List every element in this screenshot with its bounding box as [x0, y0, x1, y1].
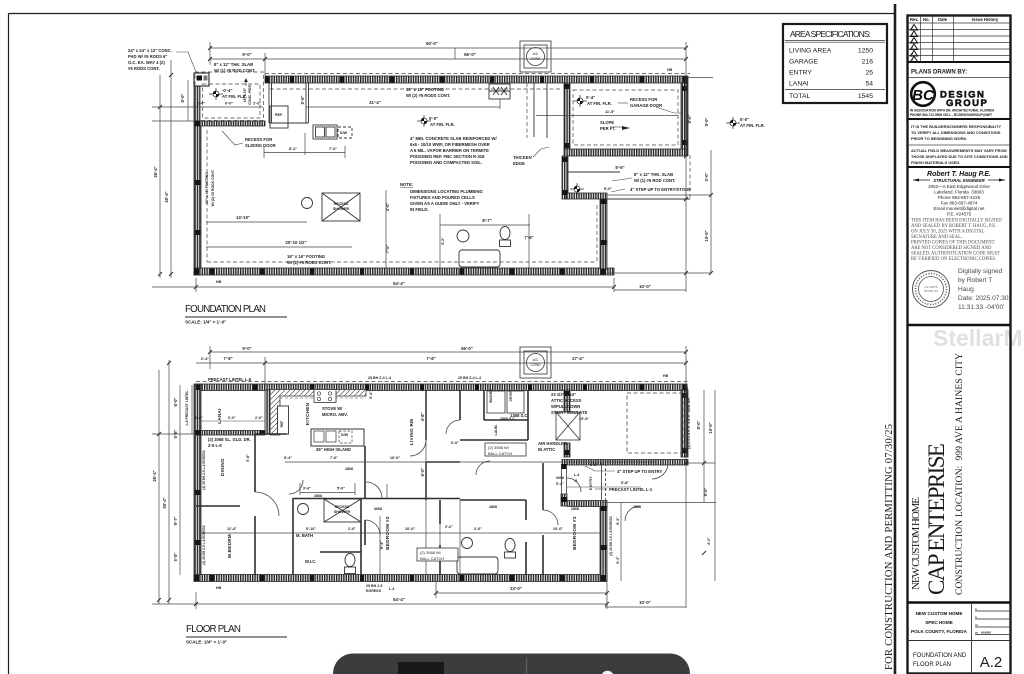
svg-text:25: 25 [865, 70, 873, 77]
svg-text:GARAGE: GARAGE [789, 59, 819, 66]
svg-text:2868: 2868 [489, 505, 497, 509]
svg-text:PAD W/ #5 RODS 6": PAD W/ #5 RODS 6" [128, 54, 167, 59]
svg-text:W/ (1) #5 ROD CONT.: W/ (1) #5 ROD CONT. [214, 68, 255, 73]
svg-text:Lakeland, Florida 33803: Lakeland, Florida 33803 [934, 190, 984, 195]
svg-text:9'-0": 9'-0" [242, 52, 251, 57]
svg-text:Rev.: Rev. [910, 17, 919, 22]
svg-text:(2) 3068 SL. GLD. DR.: (2) 3068 SL. GLD. DR. [208, 437, 251, 442]
svg-text:REF: REF [280, 421, 284, 428]
svg-text:2'-0": 2'-0" [445, 525, 453, 529]
svg-text:!: ! [912, 26, 913, 30]
svg-text:Email mooset@digital.net: Email mooset@digital.net [933, 206, 985, 211]
svg-text:16" x 16" FOOTING: 16" x 16" FOOTING [406, 87, 444, 92]
svg-text:16'-0": 16'-0" [390, 456, 401, 460]
svg-text:2'-0": 2'-0" [197, 102, 205, 106]
svg-text:4" STEP UP TO ENTRY/STOOP: 4" STEP UP TO ENTRY/STOOP [630, 187, 691, 192]
svg-text:2868: 2868 [314, 494, 322, 498]
svg-text:Robert T. Haug P.E.: Robert T. Haug P.E. [927, 171, 991, 178]
svg-text:20'-10 1/2": 20'-10 1/2" [285, 240, 306, 245]
svg-text:2868: 2868 [571, 507, 579, 511]
svg-text:8'-0": 8'-0" [696, 421, 701, 430]
svg-text:P.E. #24575: P.E. #24575 [947, 212, 972, 217]
svg-text:0'-0": 0'-0" [429, 116, 438, 121]
svg-text:Z-5 L-6: Z-5 L-6 [208, 443, 222, 448]
svg-text:by Robert T: by Robert T [958, 277, 992, 284]
svg-text:4'-0": 4'-0" [707, 537, 711, 545]
svg-text:NOTE:: NOTE: [400, 182, 413, 187]
svg-text:SPEC HOME: SPEC HOME [925, 620, 953, 625]
svg-text:REF.: REF. [275, 113, 283, 117]
svg-text:15'-5": 15'-5" [579, 417, 590, 421]
svg-text:AIR HANDLER: AIR HANDLER [538, 441, 567, 446]
svg-text:ATTIC ACCESS: ATTIC ACCESS [551, 398, 582, 403]
svg-text:FINISH MATERIALS USED.: FINISH MATERIALS USED. [911, 160, 960, 165]
svg-text:6x6 - 10/10 WWF, OR FIBERMESH: 6x6 - 10/10 WWF, OR FIBERMESH OVER [410, 142, 490, 147]
svg-text:BC: BC [912, 87, 935, 104]
svg-text:IN FIELD.: IN FIELD. [410, 207, 429, 212]
svg-text:25 BH Z-4 L-4: 25 BH Z-4 L-4 [368, 376, 391, 380]
svg-text:#5 RODS CONT.: #5 RODS CONT. [128, 66, 160, 71]
svg-text:9'-0": 9'-0" [703, 488, 708, 497]
svg-text:SEALED. AUTHENTICATION CODE M: SEALED. AUTHENTICATION CODE MUST [911, 252, 1000, 257]
svg-text:Date: Date [938, 17, 948, 22]
svg-text:SLIDING DOOR: SLIDING DOOR [245, 143, 276, 148]
svg-text:ENTRY: ENTRY [589, 476, 593, 490]
svg-text:A/C: A/C [533, 52, 539, 56]
svg-text:Date: 2025.07.30: Date: 2025.07.30 [958, 295, 1009, 302]
svg-text:RECESS: RECESS [334, 202, 349, 206]
svg-text:m.: m. [975, 623, 979, 627]
svg-text:ON JULY 30, 2025 WITH A DIGITA: ON JULY 30, 2025 WITH A DIGITAL [911, 230, 985, 235]
svg-text:AT FIN. FLR.: AT FIN. FLR. [587, 101, 612, 106]
svg-text:16" x 16" FOOTING: 16" x 16" FOOTING [205, 172, 209, 204]
svg-text:NEW CUSTOM HOME: NEW CUSTOM HOME [910, 497, 922, 590]
svg-text:4" MIN. CONCRETE SLAB REINFORC: 4" MIN. CONCRETE SLAB REINFORCED W/ [410, 136, 498, 141]
svg-text:2'-0": 2'-0" [255, 416, 263, 420]
svg-text:EDGE: EDGE [513, 161, 525, 166]
svg-text:AREA SPECIFICATIONS:: AREA SPECIFICATIONS: [790, 29, 871, 39]
svg-text:(2) 25 BH 2-5 L-6 EGRESS: (2) 25 BH 2-5 L-6 EGRESS [202, 450, 206, 489]
svg-text:(2) 3068 W/: (2) 3068 W/ [488, 445, 510, 450]
svg-text:5'-8": 5'-8" [173, 553, 178, 562]
svg-text:a.: a. [975, 607, 978, 611]
svg-text:5'-4": 5'-4" [284, 456, 292, 460]
svg-text:4" STEP UP TO ENTRY: 4" STEP UP TO ENTRY [617, 469, 663, 474]
svg-text:BALL CATCH: BALL CATCH [488, 451, 512, 456]
svg-text:LIVING AREA: LIVING AREA [789, 48, 832, 55]
svg-text:THIS ITEM HAS BEEN DIGITALLY S: THIS ITEM HAS BEEN DIGITALLY SIGNED [911, 219, 1002, 224]
svg-text:(2) 2-5 L-6 9'-0" x 8'-0" GAR.: (2) 2-5 L-6 9'-0" x 8'-0" GAR. DR. [687, 397, 691, 449]
svg-text:2'-0": 2'-0" [253, 102, 261, 106]
svg-text:SHOWER: SHOWER [334, 510, 351, 514]
svg-text:2'-6": 2'-6" [474, 527, 482, 531]
svg-text:7'-8": 7'-8" [426, 356, 435, 361]
svg-text:A 6 MIL. VAPOR BARRIER ON TERM: A 6 MIL. VAPOR BARRIER ON TERMITE [410, 148, 489, 153]
svg-text:10'-0": 10'-0" [708, 422, 713, 433]
svg-text:30'-4": 30'-4" [162, 497, 167, 508]
svg-text:TO VERIFY ALL DIMENSIONS AND C: TO VERIFY ALL DIMENSIONS AND CONDITIONS [911, 130, 1001, 135]
svg-text:FIXTURES AND POURED CELLS: FIXTURES AND POURED CELLS [410, 195, 475, 200]
svg-text:11'-5": 11'-5" [605, 110, 615, 114]
svg-text:23 1/2" x 54": 23 1/2" x 54" [551, 392, 576, 397]
svg-text:26'-4": 26'-4" [153, 166, 158, 177]
svg-text:60'-0": 60'-0" [426, 41, 438, 46]
svg-text:9'-3": 9'-3" [616, 517, 620, 525]
svg-text:2'-4": 2'-4" [201, 357, 209, 361]
svg-text:A.2: A.2 [980, 654, 1003, 671]
svg-text:10'-0": 10'-0" [704, 230, 709, 241]
svg-text:7'-6": 7'-6" [329, 147, 337, 151]
svg-text:7'-6": 7'-6" [524, 235, 533, 240]
svg-text:COND: COND [531, 363, 542, 367]
svg-text:FLOOR PLAN: FLOOR PLAN [913, 662, 951, 668]
svg-text:5'-0": 5'-0" [604, 187, 612, 191]
svg-text:54'-4": 54'-4" [393, 281, 405, 286]
svg-text:FOUNDATION PLAN: FOUNDATION PLAN [185, 304, 266, 315]
svg-text:2868: 2868 [633, 505, 641, 509]
svg-text:THICKEN: THICKEN [513, 155, 532, 160]
svg-text:1545: 1545 [858, 93, 873, 100]
svg-text:BEDROOM #2: BEDROOM #2 [385, 516, 390, 550]
svg-text:9'-3": 9'-3" [616, 556, 620, 564]
svg-text:9'-4": 9'-4" [369, 391, 373, 399]
svg-text:CONSTRUCTION LOCATION: 999 AV: CONSTRUCTION LOCATION: 999 AVE A HAINES … [955, 353, 965, 595]
svg-text:3'-8": 3'-8" [590, 463, 598, 467]
svg-text:WASHER: WASHER [489, 388, 493, 403]
svg-text:IN ATTIC: IN ATTIC [538, 447, 555, 452]
svg-text:14'-10": 14'-10" [236, 215, 250, 220]
svg-text:56'-0": 56'-0" [464, 52, 476, 57]
svg-text:POLK COUNTY, FLORIDA: POLK COUNTY, FLORIDA [911, 629, 968, 634]
svg-text:O.C. EA. WAY 4 (2): O.C. EA. WAY 4 (2) [128, 60, 165, 65]
svg-text:11:31:33 -04'00': 11:31:33 -04'00' [958, 304, 1004, 311]
svg-text:BEDROOM #3: BEDROOM #3 [572, 516, 577, 550]
svg-text:216: 216 [862, 59, 874, 66]
svg-text:GROUP: GROUP [946, 98, 988, 109]
svg-text:m. #19055: m. #19055 [975, 631, 991, 635]
svg-text:STATE OF: STATE OF [924, 289, 938, 293]
svg-text:54'-4": 54'-4" [393, 597, 405, 602]
svg-text:5'-0": 5'-0" [704, 173, 709, 182]
svg-text:IN ASSOCIATION WITH DR. ARCHIT: IN ASSOCIATION WITH DR. ARCHITECTURAL FL… [910, 109, 995, 113]
svg-text:(2) 25 BH 2-5 L-6 EGRESS: (2) 25 BH 2-5 L-6 EGRESS [609, 516, 613, 555]
svg-text:LANAI: LANAI [789, 81, 809, 88]
svg-text:0'-0": 0'-0" [740, 117, 749, 122]
svg-text:RECESS: RECESS [335, 505, 350, 509]
svg-text:3068: 3068 [374, 507, 382, 511]
svg-text:AND SEALED BY ROBERT T. HAUG,: AND SEALED BY ROBERT T. HAUG, P.E. [911, 224, 996, 229]
svg-text:PHONE 863-712-5508 CELL - BCDE: PHONE 863-712-5508 CELL - BCDESIGNGROUP@… [910, 113, 992, 117]
svg-text:10'-0": 10'-0" [405, 527, 416, 531]
svg-text:56'-0": 56'-0" [461, 346, 473, 351]
svg-text:8'-0": 8'-0" [687, 115, 692, 124]
svg-text:EGRESS: EGRESS [366, 589, 382, 593]
svg-text:5'-8": 5'-8" [246, 454, 250, 462]
svg-text:-0'-4": -0'-4" [222, 88, 232, 93]
svg-text:!: ! [912, 33, 913, 37]
svg-text:10'-0": 10'-0" [639, 600, 651, 605]
svg-text:BALL CATCH: BALL CATCH [420, 556, 444, 561]
svg-text:MICRO. ABV.: MICRO. ABV. [322, 412, 348, 417]
svg-text:26'-4": 26'-4" [152, 470, 157, 481]
svg-text:1250: 1250 [858, 48, 873, 55]
svg-text:3'-0": 3'-0" [385, 203, 390, 212]
svg-text:PRECAST LINTEL L-5: PRECAST LINTEL L-5 [208, 377, 252, 382]
svg-text:Haug: Haug [958, 286, 974, 293]
svg-text:30'-4": 30'-4" [164, 191, 169, 202]
svg-text:TOTAL: TOTAL [789, 93, 810, 100]
svg-text:6'-0": 6'-0" [228, 416, 236, 420]
svg-text:5'-8": 5'-8" [621, 481, 629, 485]
svg-text:2868: 2868 [345, 467, 353, 471]
svg-text:HB: HB [667, 68, 673, 72]
svg-text:16" x 16" FOOTING: 16" x 16" FOOTING [287, 254, 325, 259]
svg-text:!: ! [912, 46, 913, 50]
svg-text:L-6 PRECAST LINTEL: L-6 PRECAST LINTEL [185, 390, 189, 425]
svg-text:FLOOR PLAN: FLOOR PLAN [186, 624, 241, 635]
svg-text:HB: HB [216, 280, 222, 284]
svg-text:ENTRY: ENTRY [789, 70, 812, 77]
svg-text:STAIR / INSULATE: STAIR / INSULATE [551, 410, 588, 415]
svg-text:BE VERIFIED ON ELECTRONIC COPI: BE VERIFIED ON ELECTRONIC COPIES. [911, 257, 996, 262]
svg-text:a.: a. [975, 615, 978, 619]
svg-text:10'-0": 10'-0" [553, 527, 564, 531]
svg-text:9'-7": 9'-7" [173, 517, 178, 526]
svg-text:25 BH 2-5: 25 BH 2-5 [366, 584, 382, 588]
svg-text:!: ! [912, 39, 913, 43]
svg-text:PRECAST LINTEL L-1: PRECAST LINTEL L-1 [609, 487, 653, 492]
svg-text:36" HIGH ISLAND: 36" HIGH ISLAND [316, 447, 351, 452]
svg-text:5'-2": 5'-2" [441, 237, 445, 245]
svg-text:CAP ENTEPRISE: CAP ENTEPRISE [924, 443, 949, 595]
svg-text:(2) 25 BH 2-5 L-6 EGRESS: (2) 25 BH 2-5 L-6 EGRESS [202, 525, 206, 564]
svg-text:RECESS FOR: RECESS FOR [245, 137, 272, 142]
svg-text:LAUN.: LAUN. [494, 425, 498, 436]
svg-text:W/ (2) #5 RODS CONT.: W/ (2) #5 RODS CONT. [211, 169, 215, 206]
svg-text:3068: 3068 [556, 476, 564, 480]
svg-text:SIGNATURE AND SEAL.: SIGNATURE AND SEAL. [911, 235, 962, 240]
svg-text:AT FIN. FLR.: AT FIN. FLR. [740, 123, 765, 128]
svg-text:0'-4": 0'-4" [586, 95, 595, 100]
svg-text:(2) 3068 W/: (2) 3068 W/ [420, 550, 442, 555]
svg-text:8'-7": 8'-7" [482, 218, 491, 223]
svg-text:IT IS THE BUILDERS/OWNERS RESP: IT IS THE BUILDERS/OWNERS RESPONSIBILITY [911, 124, 1002, 129]
svg-text:DIMENSIONS LOCATING PLUMBING: DIMENSIONS LOCATING PLUMBING [410, 189, 483, 194]
svg-text:NEW CUSTOM HOME: NEW CUSTOM HOME [916, 611, 963, 616]
svg-text:W/ (1) #5 ROD CONT.: W/ (1) #5 ROD CONT. [634, 178, 675, 183]
svg-text:FOR CONSTRUCTION AND PERMITTIN: FOR CONSTRUCTION AND PERMITTING 07/30/25 [884, 424, 895, 670]
svg-text:W/ (2) #5 RODS CONT.: W/ (2) #5 RODS CONT. [287, 260, 331, 265]
svg-text:POISONED AND COMPACTED SOIL.: POISONED AND COMPACTED SOIL. [410, 160, 482, 165]
svg-text:4'-8": 4'-8" [420, 413, 425, 422]
svg-text:2868 S.C.: 2868 S.C. [500, 417, 516, 421]
svg-text:10'-0": 10'-0" [639, 284, 651, 289]
svg-text:POISONED REF. FBC SECTION R-31: POISONED REF. FBC SECTION R-318 [410, 154, 485, 159]
svg-text:-5: -5 [574, 479, 577, 483]
svg-text:6'-0": 6'-0" [451, 441, 459, 445]
svg-text:8" x 12" THK. SLAB: 8" x 12" THK. SLAB [214, 62, 253, 67]
svg-text:9'-0": 9'-0" [704, 118, 709, 127]
svg-text:27'-4": 27'-4" [572, 356, 584, 361]
svg-text:THOSE DISPLAYED DUE TO SITE CO: THOSE DISPLAYED DUE TO SITE CONDITIONS A… [911, 154, 1008, 159]
svg-text:W/ (2) #5 RODS CONT.: W/ (2) #5 RODS CONT. [406, 93, 450, 98]
svg-text:9'-3": 9'-3" [379, 541, 384, 550]
svg-text:24" x 24" x 12" CONC.: 24" x 24" x 12" CONC. [128, 48, 172, 53]
svg-text:STOVE W/: STOVE W/ [322, 406, 343, 411]
svg-text:M.BEDRM: M.BEDRM [227, 534, 232, 558]
svg-text:7'-6": 7'-6" [330, 456, 338, 460]
svg-text:5'-8": 5'-8" [173, 430, 178, 439]
svg-text:31'-4": 31'-4" [369, 100, 381, 105]
svg-text:9'-0": 9'-0" [242, 346, 251, 351]
svg-text:AT FIN. FLR.: AT FIN. FLR. [430, 122, 455, 127]
svg-text:KITCHEN: KITCHEN [305, 402, 310, 425]
svg-text:SHOWER: SHOWER [333, 207, 350, 211]
svg-text:PRIOR TO BEGINNING WORK.: PRIOR TO BEGINNING WORK. [911, 136, 967, 141]
svg-text:54: 54 [865, 81, 873, 88]
svg-text:!: ! [912, 52, 913, 56]
svg-text:ARE NOT CONSIDERED SIGNED AND: ARE NOT CONSIDERED SIGNED AND [911, 246, 992, 251]
svg-text:2'-6": 2'-6" [348, 527, 356, 531]
svg-text:2052—A East Edgewood Drive: 2052—A East Edgewood Drive [928, 184, 990, 189]
svg-text:6'-0": 6'-0" [180, 94, 185, 103]
svg-text:6'-0": 6'-0" [420, 468, 425, 477]
svg-text:D/W: D/W [340, 131, 348, 135]
svg-text:5'-5": 5'-5" [300, 96, 305, 105]
svg-text:2'-0": 2'-0" [195, 416, 203, 420]
svg-text:STRUCTURAL ENGINEER: STRUCTURAL ENGINEER [933, 178, 985, 183]
svg-text:SCALE: 1/4" = 1'-0": SCALE: 1/4" = 1'-0" [185, 320, 226, 325]
svg-text:6'-0": 6'-0" [173, 398, 178, 407]
svg-text:23'-0": 23'-0" [510, 586, 522, 591]
svg-text:Fax 863-687-4874: Fax 863-687-4874 [941, 201, 978, 206]
svg-text:HB: HB [216, 586, 222, 590]
svg-text:7'-8": 7'-8" [223, 356, 232, 361]
svg-text:5'-2": 5'-2" [556, 482, 564, 486]
svg-text:8" x 12" THK. SLAB: 8" x 12" THK. SLAB [634, 172, 673, 177]
svg-text:CONC. PIER: CONC. PIER [248, 85, 252, 105]
svg-text:Phone 863-687-4225: Phone 863-687-4225 [938, 195, 981, 200]
svg-text:M. BATH: M. BATH [296, 533, 313, 538]
svg-text:SLOPE: SLOPE [600, 120, 614, 125]
svg-text:AT FIN. FLR.: AT FIN. FLR. [222, 94, 247, 99]
svg-text:GIVEN AS A GUIDE ONLY - VERIFY: GIVEN AS A GUIDE ONLY - VERIFY [410, 201, 480, 206]
svg-text:6'-0": 6'-0" [225, 102, 233, 106]
svg-text:Issue History: Issue History [972, 17, 999, 22]
svg-text:W/PULLDOWN: W/PULLDOWN [551, 404, 580, 409]
svg-text:A/C: A/C [533, 358, 539, 362]
svg-text:D/W: D/W [341, 433, 349, 437]
svg-text:5'-10": 5'-10" [306, 527, 317, 531]
svg-text:LIVING RM: LIVING RM [409, 419, 414, 445]
svg-text:8'-2": 8'-2" [289, 147, 297, 151]
svg-text:L-4: L-4 [574, 473, 579, 477]
svg-text:L-4: L-4 [389, 587, 394, 591]
svg-text:DINING: DINING [220, 458, 225, 476]
svg-text:SCALE: 1/4" = 1'-0": SCALE: 1/4" = 1'-0" [186, 640, 227, 645]
svg-text:!: ! [912, 58, 913, 62]
svg-text:RECESS FOR: RECESS FOR [630, 97, 657, 102]
svg-text:ACTUAL FIELD MEASUREMENTS MAY: ACTUAL FIELD MEASUREMENTS MAY VARY FROM [911, 148, 1007, 153]
svg-text:25 BH Z-4 L-4: 25 BH Z-4 L-4 [458, 376, 481, 380]
svg-text:HB: HB [663, 374, 669, 378]
svg-text:W.I.C.: W.I.C. [305, 559, 316, 564]
svg-text:7'-5": 7'-5" [385, 245, 390, 254]
svg-text:LANAI: LANAI [217, 408, 222, 424]
svg-text:PLANS DRAWN BY:: PLANS DRAWN BY: [911, 70, 967, 76]
svg-text:DRYER: DRYER [509, 390, 513, 402]
svg-text:5'-0": 5'-0" [337, 487, 345, 491]
svg-text:5'-6": 5'-6" [615, 165, 624, 170]
svg-text:11'-6": 11'-6" [227, 527, 237, 531]
svg-text:Digitally signed: Digitally signed [958, 268, 1003, 275]
svg-text:PRINTED COPIES OF THIS DOCUMEN: PRINTED COPIES OF THIS DOCUMENT [911, 241, 995, 246]
svg-text:3'-6": 3'-6" [303, 487, 311, 491]
svg-text:No.: No. [923, 17, 930, 22]
svg-text:FOUNDATION AND: FOUNDATION AND [913, 653, 967, 659]
